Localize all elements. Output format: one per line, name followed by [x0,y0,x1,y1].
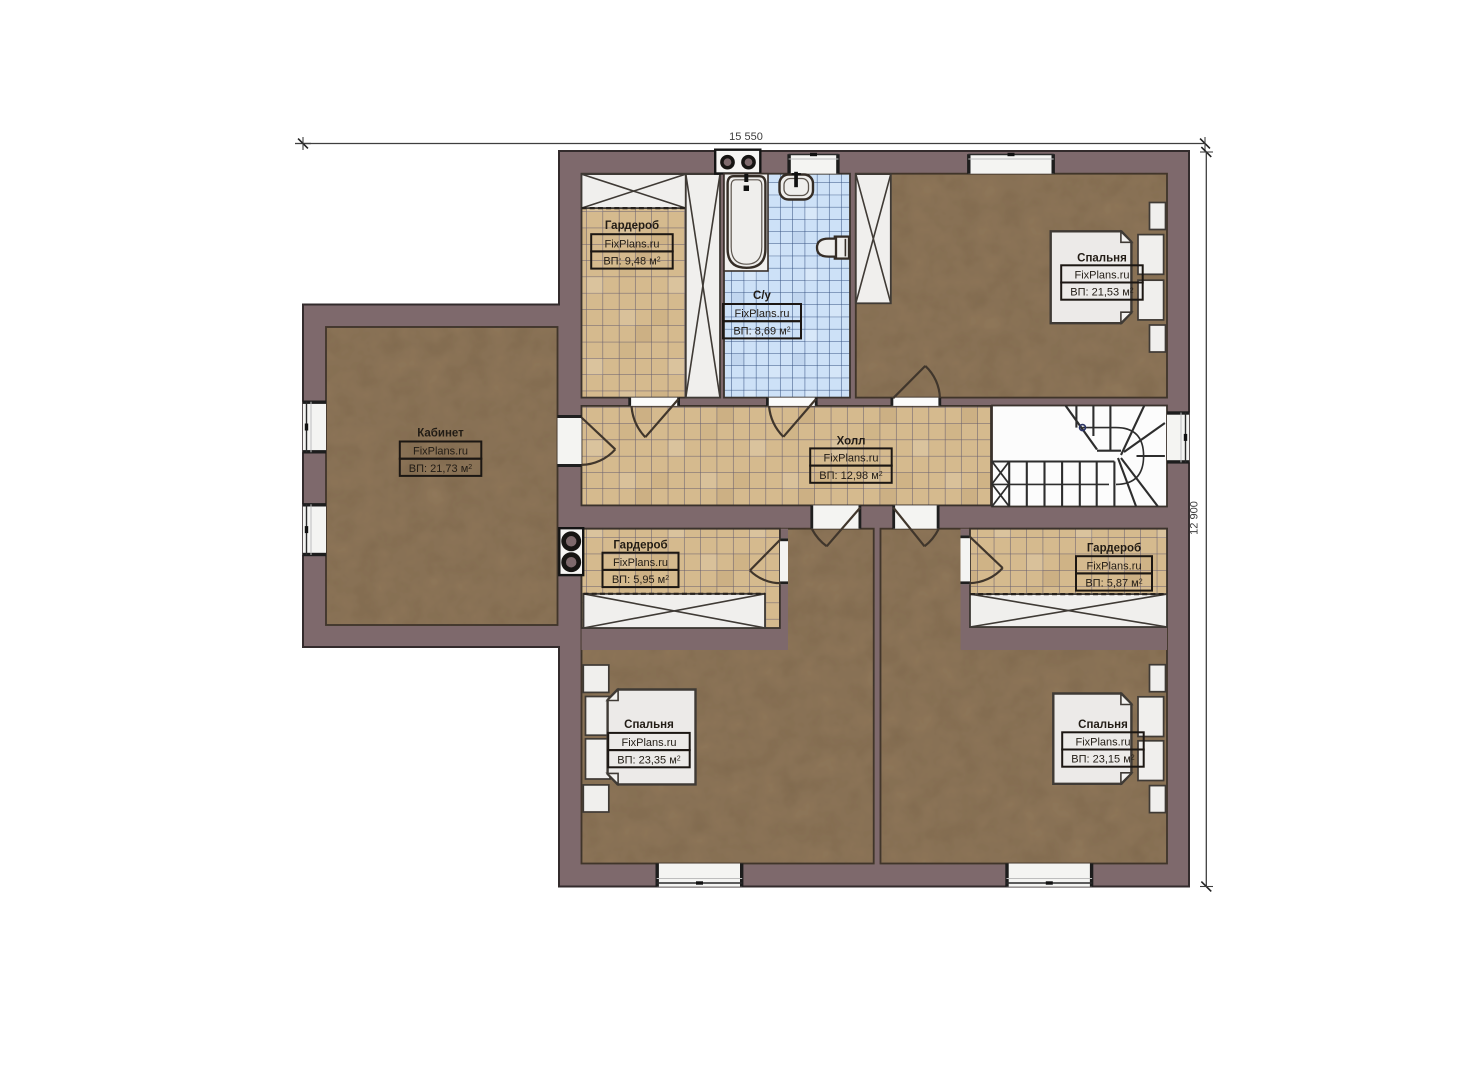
svg-text:Спальня: Спальня [624,719,674,731]
svg-text:FixPlans.ru: FixPlans.ru [604,238,659,250]
svg-text:Гардероб: Гардероб [605,220,659,232]
svg-text:ВП: 8,69 м2: ВП: 8,69 м2 [733,325,790,337]
svg-text:FixPlans.ru: FixPlans.ru [1086,560,1141,572]
svg-text:Гардероб: Гардероб [613,540,667,552]
svg-text:12 900: 12 900 [1189,501,1201,535]
svg-text:Кабинет: Кабинет [417,428,464,440]
svg-text:FixPlans.ru: FixPlans.ru [1074,270,1129,282]
svg-text:FixPlans.ru: FixPlans.ru [413,446,468,458]
svg-text:Гардероб: Гардероб [1087,543,1141,555]
svg-text:FixPlans.ru: FixPlans.ru [823,453,878,465]
svg-text:Спальня: Спальня [1078,719,1128,731]
svg-text:FixPlans.ru: FixPlans.ru [621,737,676,749]
svg-text:FixPlans.ru: FixPlans.ru [613,557,668,569]
svg-text:ВП: 5,95 м2: ВП: 5,95 м2 [612,574,669,586]
svg-text:15 550: 15 550 [729,131,763,143]
svg-text:ВП: 21,53 м2: ВП: 21,53 м2 [1070,287,1134,299]
svg-text:ВП: 12,98 м2: ВП: 12,98 м2 [819,470,883,482]
svg-text:ВП: 9,48 м2: ВП: 9,48 м2 [603,256,660,268]
svg-text:FixPlans.ru: FixPlans.ru [734,308,789,320]
svg-text:ВП: 23,15 м2: ВП: 23,15 м2 [1071,754,1135,766]
svg-text:ВП: 23,35 м2: ВП: 23,35 м2 [617,754,681,766]
svg-text:ВП: 21,73 м2: ВП: 21,73 м2 [409,463,473,475]
svg-text:FixPlans.ru: FixPlans.ru [1075,737,1130,749]
svg-text:Спальня: Спальня [1077,253,1127,265]
svg-text:ВП: 5,87 м2: ВП: 5,87 м2 [1085,578,1142,590]
svg-text:С/у: С/у [753,290,772,302]
svg-text:Холл: Холл [837,436,866,448]
